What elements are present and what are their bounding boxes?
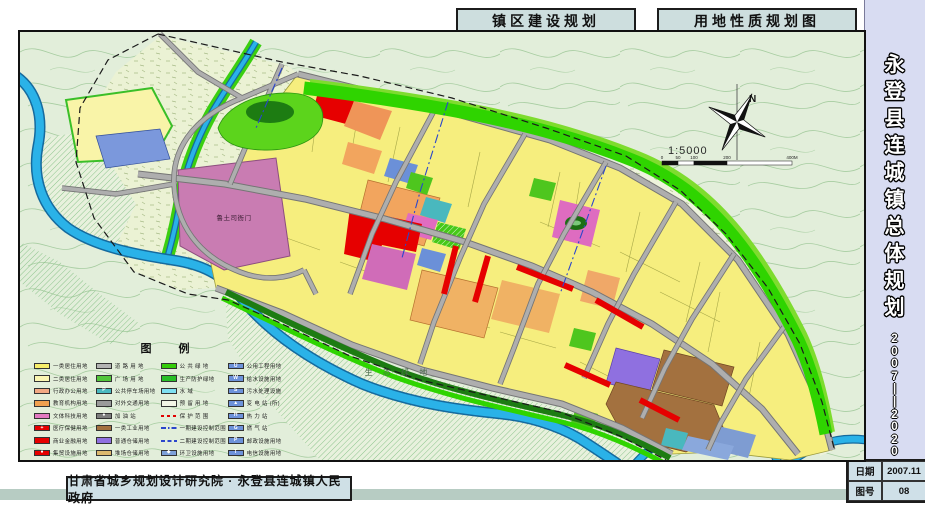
scale-tick-1: 50 [675, 155, 681, 160]
legend-item: ▲变 电 站 (所) [228, 397, 293, 409]
legend-label: 生产防护绿地 [180, 375, 215, 383]
legend-swatch [161, 363, 177, 370]
legend-label: 保 护 范 围 [180, 412, 209, 420]
legend-swatch [161, 440, 177, 442]
legend-swatch: H [228, 413, 244, 420]
legend-label: 一期建设控制范围 [180, 424, 226, 432]
legend-swatch: ● [34, 450, 50, 457]
legend-swatch: U [228, 363, 244, 370]
legend-label: 二类居住用地 [53, 375, 88, 383]
legend-swatch [34, 400, 50, 407]
legend-label: 医疗保健用地 [53, 424, 88, 432]
legend-label: 公 共 绿 地 [180, 362, 209, 370]
legend-swatch [161, 415, 177, 417]
scale-tick-2: 100 [690, 155, 698, 160]
legend-label: 给水设施用地 [247, 375, 282, 383]
heritage-site-label: 鲁土司衙门 [217, 213, 252, 222]
legend-swatch [161, 388, 177, 395]
legend-item: 村镇建设用地界线 [228, 459, 293, 462]
legend-label: 广 场 用 地 [115, 375, 144, 383]
legend-item: ●加 油 站 [96, 410, 158, 422]
sidebar-year-char: 0 [891, 445, 898, 458]
legend-item: S污水处理设施 [228, 385, 293, 397]
legend-swatch [96, 425, 112, 432]
sidebar-title-char: 永 [885, 52, 905, 79]
sidebar-year-char: 0 [891, 420, 898, 433]
title-right-text: 用地性质规划图 [694, 11, 820, 31]
legend-swatch: P [96, 388, 112, 395]
sidebar-title-char: 县 [885, 106, 905, 133]
legend-swatch [161, 375, 177, 382]
legend-item: 预 留 用 地 [161, 397, 225, 409]
legend-item: 一类工业用地 [96, 422, 158, 434]
legend-swatch: ▲ [228, 400, 244, 407]
scale-tick-3: 200 [723, 155, 731, 160]
legend-swatch: S [228, 388, 244, 395]
legend-label: 教育机构用地 [53, 399, 88, 407]
legend-label: 污水处理设施 [247, 387, 282, 395]
legend-item: 保 护 范 围 [161, 410, 225, 422]
legend-swatch [96, 375, 112, 382]
legend-swatch: P [228, 437, 244, 444]
legend-item: P公共停车场用地 [96, 385, 158, 397]
legend: 图 例 一类居住用地二类居住用地行政办公用地教育机构用地文体科技用地+医疗保健用… [34, 340, 296, 462]
sidebar-title-char: 总 [885, 214, 905, 241]
legend-label: 加 油 站 [115, 412, 136, 420]
eco-green-label: 生 态 绿 地 [365, 367, 432, 377]
legend-item: 商业金融用地 [34, 434, 93, 446]
legend-label: 堆场仓储用地 [115, 449, 150, 457]
legend-swatch [34, 388, 50, 395]
legend-item: 行政办公用地 [34, 385, 93, 397]
legend-item: 对外交通用地 [96, 397, 158, 409]
legend-swatch [96, 437, 112, 444]
sidebar-title: 永登县连城镇总体规划 [864, 52, 925, 322]
planning-map: 鲁土司衙门 生 态 绿 地 N 1:5000 0 50 100 200 400M… [18, 30, 866, 462]
legend-label: 公共停车场用地 [115, 387, 156, 395]
legend-item: T电信设施用地 [228, 447, 293, 459]
legend-item: 水 域 [161, 385, 225, 397]
legend-item: 文体科技用地 [34, 410, 93, 422]
legend-swatch [96, 363, 112, 370]
legend-item: P邮政设施用地 [228, 434, 293, 446]
legend-label: 道 路 用 地 [115, 362, 144, 370]
legend-label: 二期建设控制范围 [180, 437, 226, 445]
date-label: 日期 [848, 461, 882, 481]
legend-item: 普通仓储用地 [96, 434, 158, 446]
legend-swatch [34, 375, 50, 382]
sidebar-title-char: 登 [885, 79, 905, 106]
legend-item: 广 场 用 地 [96, 372, 158, 384]
legend-label: 村镇建设用地界线 [247, 461, 293, 462]
date-value: 2007.11 [882, 461, 925, 481]
legend-swatch [96, 450, 112, 457]
legend-title: 图 例 [34, 340, 296, 356]
legend-swatch [34, 363, 50, 370]
credit-box: 甘肃省城乡规划设计研究院 · 永登县连城镇人民政府 [66, 476, 352, 501]
legend-label: 行政办公用地 [53, 387, 88, 395]
legend-item: W给水设施用地 [228, 372, 293, 384]
legend-label: 环卫设施用地 [180, 449, 215, 457]
legend-item: 二类居住用地 [34, 372, 93, 384]
legend-swatch [34, 437, 50, 444]
legend-label: 变 电 站 (所) [247, 399, 280, 407]
sidebar-title-char: 划 [885, 295, 905, 322]
legend-item: 一类居住用地 [34, 360, 93, 372]
legend-swatch [161, 427, 177, 429]
legend-columns: 一类居住用地二类居住用地行政办公用地教育机构用地文体科技用地+医疗保健用地商业金… [34, 360, 296, 462]
legend-item: 一期建设控制范围 [161, 422, 225, 434]
legend-column: 道 路 用 地广 场 用 地P公共停车场用地对外交通用地●加 油 站一类工业用地… [96, 360, 158, 462]
legend-label: 文体科技用地 [53, 412, 88, 420]
legend-column: U公用工程用地W给水设施用地S污水处理设施▲变 电 站 (所)H热 力 站G燃 … [228, 360, 293, 462]
legend-item: 堆场仓储用地 [96, 447, 158, 459]
legend-swatch: T [228, 450, 244, 457]
sheet-label: 图号 [848, 481, 882, 501]
legend-item: ●集贸设施用地 [34, 447, 93, 459]
legend-column: 一类居住用地二类居住用地行政办公用地教育机构用地文体科技用地+医疗保健用地商业金… [34, 360, 93, 462]
legend-item: H热 力 站 [228, 410, 293, 422]
sidebar-title-char: 体 [885, 241, 905, 268]
sidebar-title-char: 连 [885, 133, 905, 160]
legend-swatch [161, 400, 177, 407]
legend-label: 对外交通用地 [115, 399, 150, 407]
legend-item: 二期建设控制范围 [161, 434, 225, 446]
legend-label: 普通仓储用地 [115, 437, 150, 445]
legend-item: 公 共 绿 地 [161, 360, 225, 372]
legend-item: 道 路 用 地 [96, 360, 158, 372]
north-label: N [749, 94, 756, 105]
sidebar-years: 2007||2020 [864, 332, 925, 458]
legend-label: 水 域 [180, 387, 193, 395]
legend-label: 热 力 站 [247, 412, 268, 420]
legend-column: 公 共 绿 地生产防护绿地水 域预 留 用 地保 护 范 围一期建设控制范围二期… [161, 360, 225, 462]
sidebar-title-char: 规 [885, 268, 905, 295]
sidebar-title-char: 镇 [885, 187, 905, 214]
legend-label: 邮政设施用地 [247, 437, 282, 445]
legend-label: 一类居住用地 [53, 362, 88, 370]
legend-item: U公用工程用地 [228, 360, 293, 372]
legend-label: 一类工业用地 [115, 424, 150, 432]
legend-swatch: G [228, 425, 244, 432]
legend-swatch: ● [96, 413, 112, 420]
legend-label: 商业金融用地 [53, 437, 88, 445]
legend-label: 集贸设施用地 [53, 449, 88, 457]
credit-text: 甘肃省城乡规划设计研究院 · 永登县连城镇人民政府 [68, 472, 350, 506]
sidebar-year-char: | [893, 395, 896, 408]
legend-label: 预 留 用 地 [180, 399, 209, 407]
legend-item: ◆环卫设施用地 [161, 447, 225, 459]
legend-item: G燃 气 站 [228, 422, 293, 434]
date-sheet-table: 日期 2007.11 图号 08 [846, 459, 925, 503]
sidebar-title-char: 城 [885, 160, 905, 187]
scale-ratio: 1:5000 [668, 145, 708, 157]
sidebar-year-char: 2 [891, 332, 898, 345]
scale-tick-4: 400M [786, 155, 798, 160]
legend-swatch: ◆ [161, 450, 177, 457]
legend-swatch [34, 413, 50, 420]
title-left-text: 镇区建设规划 [492, 11, 600, 31]
legend-swatch: + [34, 425, 50, 432]
legend-label: 燃 气 站 [247, 424, 268, 432]
sheet-value: 08 [882, 481, 925, 501]
legend-item: 教育机构用地 [34, 397, 93, 409]
legend-label: 电信设施用地 [247, 449, 282, 457]
legend-item: 生产防护绿地 [161, 372, 225, 384]
legend-label: 公用工程用地 [247, 362, 282, 370]
legend-swatch: W [228, 375, 244, 382]
legend-item: +医疗保健用地 [34, 422, 93, 434]
legend-swatch [96, 400, 112, 407]
sidebar-year-char: 0 [891, 357, 898, 370]
